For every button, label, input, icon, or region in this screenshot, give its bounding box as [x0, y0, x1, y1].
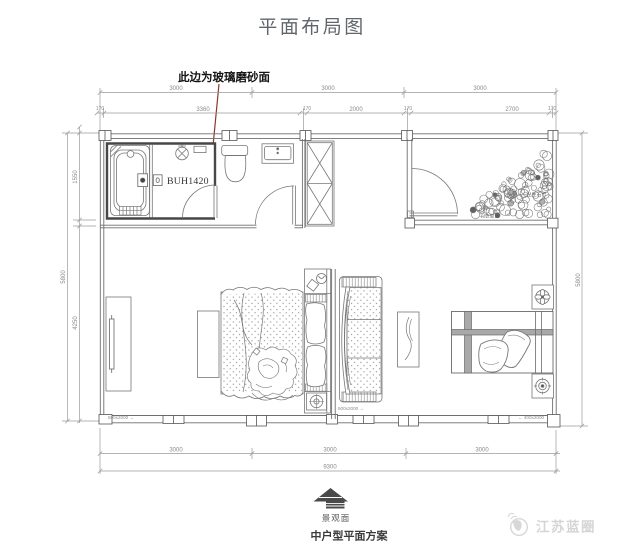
svg-text:江苏蓝圈: 江苏蓝圈: [536, 519, 596, 535]
svg-text:500x2000 →: 500x2000 →: [338, 406, 364, 411]
svg-text:5800: 5800: [61, 270, 67, 284]
svg-text:羽衣甘蓝: 羽衣甘蓝: [480, 213, 499, 220]
svg-text:2700: 2700: [505, 107, 519, 113]
svg-text:9300: 9300: [323, 465, 337, 471]
svg-text:2000: 2000: [349, 107, 363, 113]
svg-text:3000: 3000: [321, 86, 335, 92]
svg-text:500x2000 →: 500x2000 →: [108, 415, 134, 420]
svg-text:170: 170: [303, 106, 312, 112]
svg-text:3000: 3000: [475, 448, 489, 454]
svg-text:BUH1420: BUH1420: [167, 176, 209, 187]
svg-text:丛生石竹: 丛生石竹: [527, 191, 546, 198]
svg-text:1550: 1550: [73, 170, 79, 184]
svg-text:景观面: 景观面: [322, 513, 351, 523]
svg-text:3000: 3000: [169, 86, 183, 92]
svg-text:170: 170: [404, 106, 413, 112]
svg-text:3000: 3000: [323, 448, 337, 454]
svg-text:5800: 5800: [576, 273, 582, 287]
svg-text:平面布局图: 平面布局图: [258, 16, 366, 38]
svg-text:3000: 3000: [473, 86, 487, 92]
svg-text:← 400x2000: ← 400x2000: [518, 415, 544, 420]
svg-text:中户型平面方案: 中户型平面方案: [311, 529, 389, 543]
svg-text:3000: 3000: [169, 448, 183, 454]
svg-text:此边为玻璃磨砂面: 此边为玻璃磨砂面: [178, 70, 270, 84]
svg-text:170: 170: [548, 106, 557, 112]
svg-text:3360: 3360: [196, 107, 210, 113]
svg-text:170: 170: [96, 106, 105, 112]
svg-text:4250: 4250: [73, 316, 79, 330]
